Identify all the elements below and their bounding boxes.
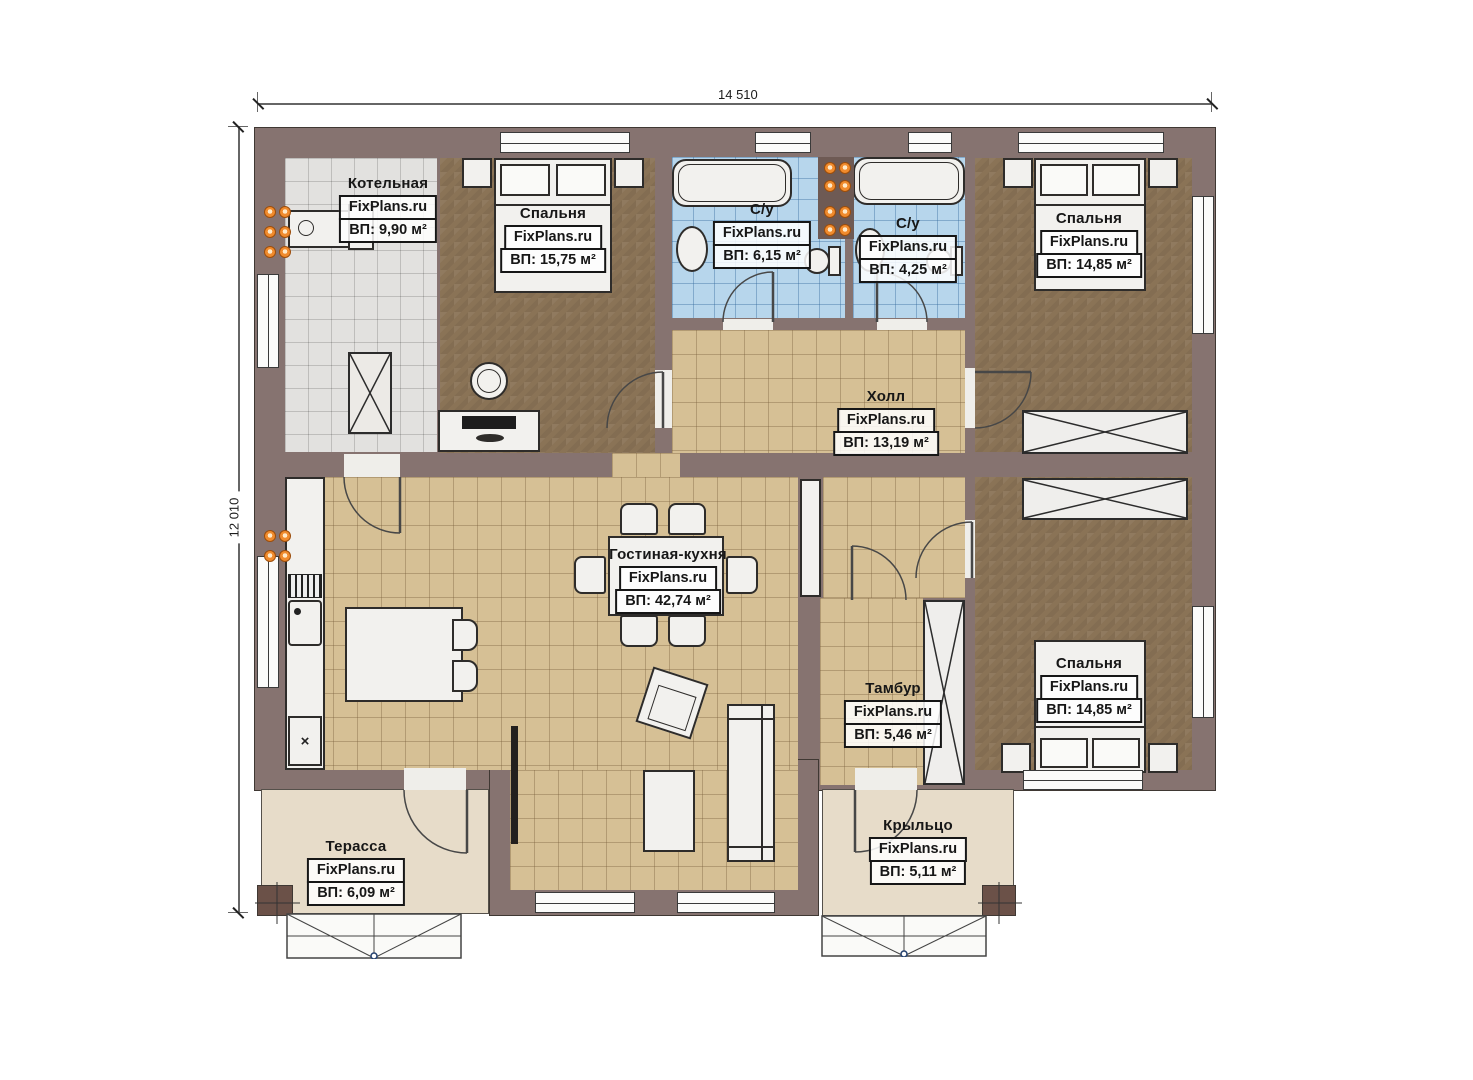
porch-steps (821, 915, 987, 957)
sofa-armrest (729, 846, 773, 848)
dining-chair (620, 503, 658, 535)
nightstand (1001, 743, 1031, 773)
window-living-bottom-2 (677, 892, 775, 913)
nightstand (614, 158, 644, 188)
kitchen-sink (288, 600, 322, 646)
boiler-dial (298, 220, 314, 236)
wardrobe (1022, 410, 1188, 454)
blanket-line (1036, 204, 1144, 206)
terrace-post (258, 886, 292, 915)
room-label-hall: Холл FixPlans.ru ВП: 13,19 м² (833, 388, 939, 456)
room-area: ВП: 9,90 м² (339, 218, 437, 243)
pillow (1092, 164, 1140, 196)
sofa (727, 704, 775, 862)
bathtub-rim (678, 164, 786, 202)
room-name: Спальня (1036, 655, 1142, 672)
bar-chair (452, 660, 478, 692)
room-label-bath2: С/у FixPlans.ru ВП: 4,25 м² (859, 215, 957, 283)
dining-chair (668, 503, 706, 535)
room-area: ВП: 6,09 м² (307, 881, 405, 906)
door-opening-bath1 (723, 319, 773, 330)
door-opening-boiler (344, 454, 400, 477)
window-boiler-left (257, 274, 279, 368)
room-area: ВП: 15,75 м² (500, 248, 606, 273)
room-area: ВП: 5,46 м² (844, 723, 942, 748)
radiator (824, 162, 851, 192)
sofa-armrest (729, 718, 773, 720)
dining-chair (620, 615, 658, 647)
room-area: ВП: 4,25 м² (859, 258, 957, 283)
boiler-equipment (348, 352, 392, 434)
room-name: С/у (713, 201, 811, 218)
room-label-tambour: Тамбур FixPlans.ru ВП: 5,46 м² (844, 680, 942, 748)
room-label-boiler: Котельная FixPlans.ru ВП: 9,90 м² (339, 175, 437, 243)
bar-chair (452, 619, 478, 651)
door-opening-terrace (404, 768, 466, 790)
monitor-stand (476, 434, 504, 442)
watermark: FixPlans.ru (844, 700, 942, 725)
toilet-tank (828, 246, 841, 276)
watermark: FixPlans.ru (307, 858, 405, 883)
sink (676, 226, 708, 272)
nightstand (1148, 743, 1178, 773)
dish-rack (288, 574, 322, 598)
door-opening-bedroom1 (655, 370, 672, 428)
room-name: С/у (859, 215, 957, 232)
radiator (264, 530, 291, 562)
room-name: Крыльцо (869, 817, 967, 834)
window-bedroom1-top (500, 132, 630, 153)
pillow (556, 164, 606, 196)
room-area: ВП: 14,85 м² (1036, 253, 1142, 278)
room-area: ВП: 13,19 м² (833, 431, 939, 456)
dining-chair (726, 556, 758, 594)
room-label-bath1: С/у FixPlans.ru ВП: 6,15 м² (713, 201, 811, 269)
window-bath2-top (908, 132, 952, 153)
tv-icon (511, 726, 518, 844)
door-opening-bath2 (877, 319, 927, 330)
watermark: FixPlans.ru (1040, 230, 1138, 255)
kitchen-appliance: × (288, 716, 322, 766)
bathtub-rim (859, 162, 959, 200)
pillow (1040, 164, 1088, 196)
watermark: FixPlans.ru (713, 221, 811, 246)
window-bedroom3-bottom (1023, 770, 1143, 790)
coffee-table (643, 770, 695, 852)
pillow (1092, 738, 1140, 768)
watermark: FixPlans.ru (859, 235, 957, 260)
dining-chair (668, 615, 706, 647)
room-label-living: Гостиная-кухня FixPlans.ru ВП: 42,74 м² (609, 546, 727, 614)
porch-post (983, 886, 1015, 915)
room-label-bedroom1: Спальня FixPlans.ru ВП: 15,75 м² (500, 205, 606, 273)
watermark: FixPlans.ru (1040, 675, 1138, 700)
room-area: ВП: 6,15 м² (713, 244, 811, 269)
window-bedroom2-top (1018, 132, 1164, 153)
room-name: Тамбур (844, 680, 942, 697)
window-kitchen-left (257, 556, 279, 688)
floor-plan-canvas: 14 510 12 010 (0, 0, 1473, 1080)
radiator (824, 206, 851, 236)
room-area: ВП: 42,74 м² (615, 589, 721, 614)
room-name: Гостиная-кухня (609, 546, 727, 563)
faucet (294, 608, 301, 615)
room-name: Котельная (339, 175, 437, 192)
room-name: Спальня (500, 205, 606, 222)
watermark: FixPlans.ru (339, 195, 437, 220)
room-name: Терасса (307, 838, 405, 855)
window-bedroom2-right (1192, 196, 1214, 334)
pillow (1040, 738, 1088, 768)
room-area: ВП: 14,85 м² (1036, 698, 1142, 723)
window-living-bottom-1 (535, 892, 635, 913)
dining-chair (574, 556, 606, 594)
monitor-icon (462, 416, 516, 429)
radiator (264, 206, 291, 258)
door-opening-bedroom2 (965, 368, 975, 428)
terrace-steps (286, 913, 462, 959)
pocket-door-panel (800, 479, 821, 597)
floor-hall-opening (612, 453, 680, 479)
pot-lid (477, 369, 501, 393)
watermark: FixPlans.ru (619, 566, 717, 591)
door-opening-bedroom3 (965, 520, 975, 578)
room-name: Холл (833, 388, 939, 405)
room-name: Спальня (1036, 210, 1142, 227)
dimension-line-top (258, 103, 1212, 105)
watermark: FixPlans.ru (504, 225, 602, 250)
dimension-label-height: 12 010 (226, 492, 241, 544)
window-bath1-top (755, 132, 811, 153)
nightstand (462, 158, 492, 188)
room-area: ВП: 5,11 м² (870, 860, 967, 885)
room-label-bedroom2: Спальня FixPlans.ru ВП: 14,85 м² (1036, 210, 1142, 278)
nightstand (1003, 158, 1033, 188)
sofa-backrest (761, 706, 763, 860)
room-label-terrace: Терасса FixPlans.ru ВП: 6,09 м² (307, 838, 405, 906)
floor-corridor (823, 477, 965, 598)
room-label-bedroom3: Спальня FixPlans.ru ВП: 14,85 м² (1036, 655, 1142, 723)
wardrobe (1022, 478, 1188, 520)
door-opening-entrance (855, 768, 917, 790)
window-bedroom3-right (1192, 606, 1214, 718)
room-label-porch: Крыльцо FixPlans.ru ВП: 5,11 м² (869, 817, 967, 885)
watermark: FixPlans.ru (837, 408, 935, 433)
pillow (500, 164, 550, 196)
dimension-label-width: 14 510 (712, 87, 764, 102)
watermark: FixPlans.ru (869, 837, 967, 862)
blanket-line (1036, 726, 1144, 728)
nightstand (1148, 158, 1178, 188)
kitchen-island (345, 607, 463, 702)
